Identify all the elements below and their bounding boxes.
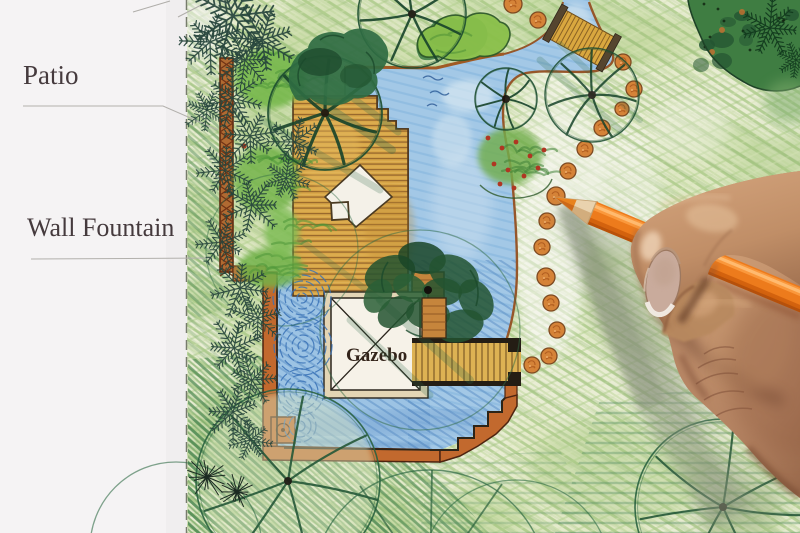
svg-text:Patio: Patio	[23, 60, 79, 90]
svg-text:Wall Fountain: Wall Fountain	[27, 213, 174, 242]
